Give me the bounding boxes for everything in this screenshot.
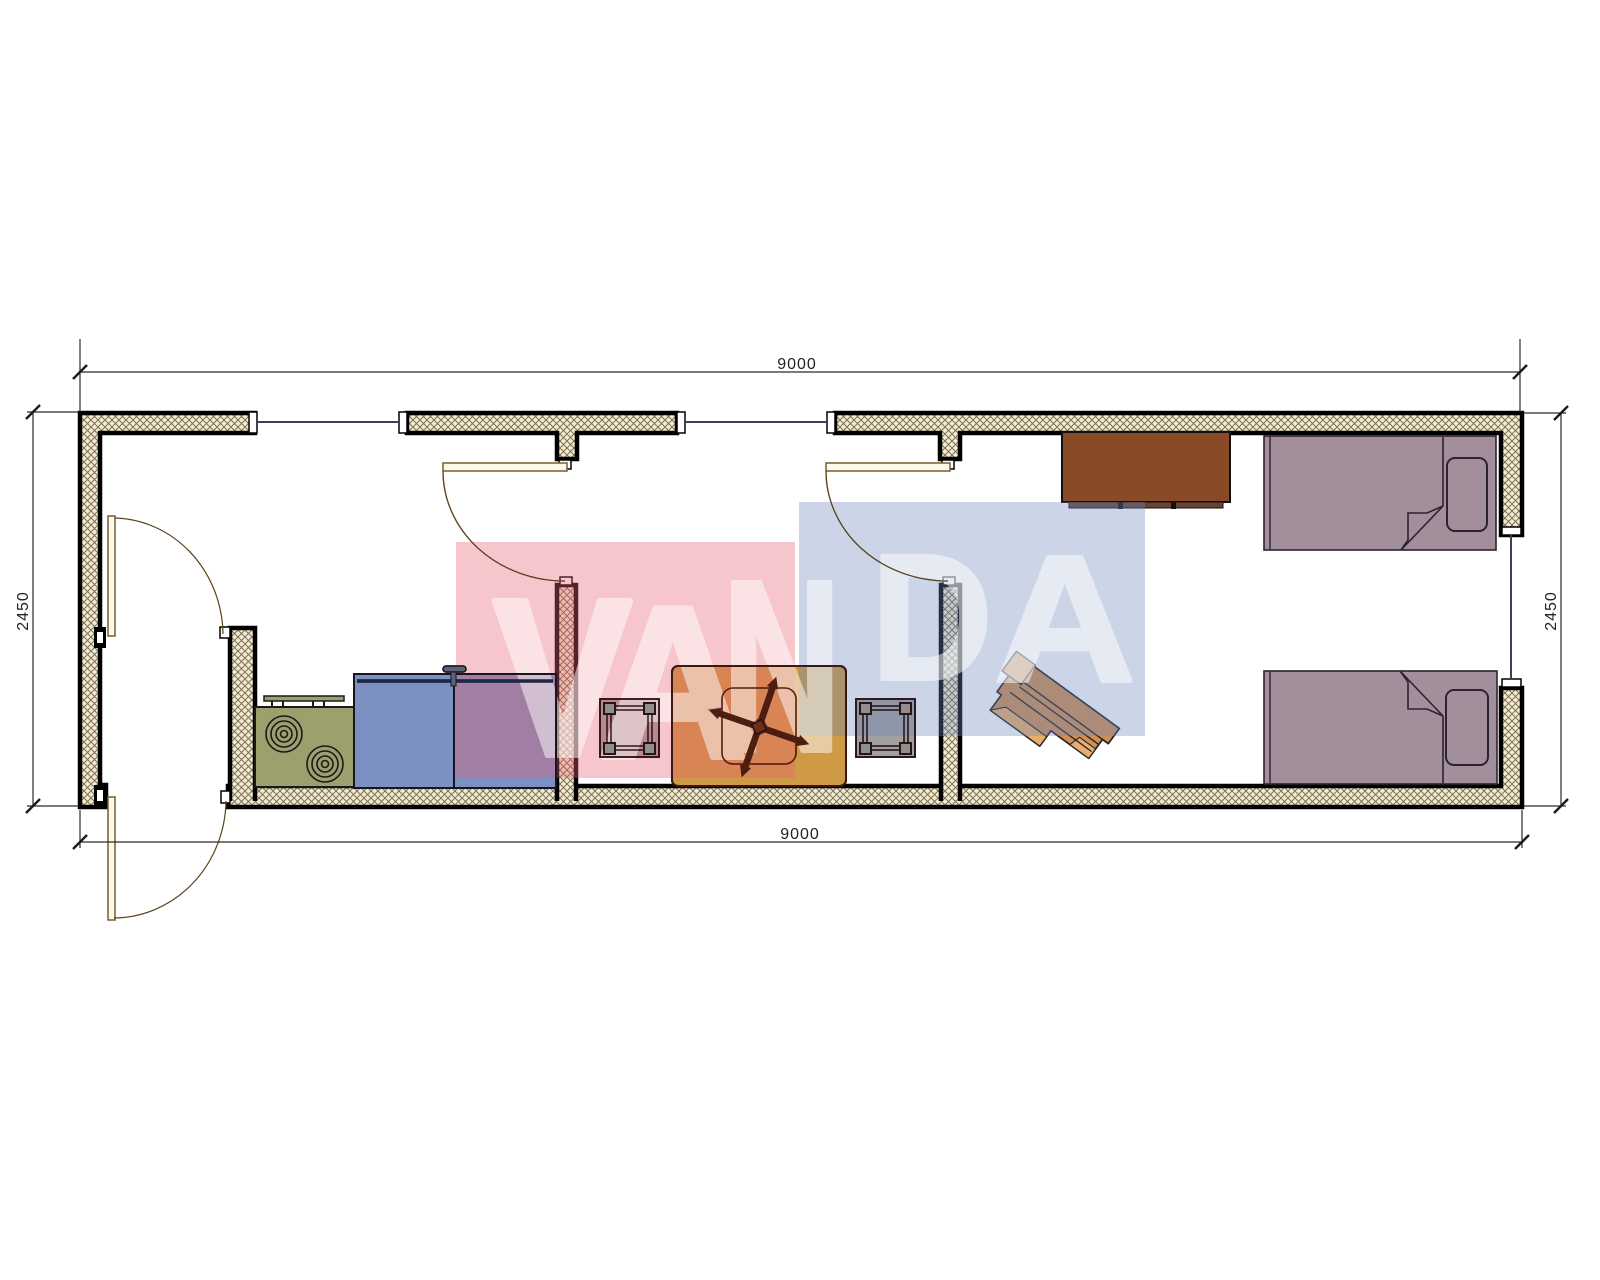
svg-text:9000: 9000 xyxy=(780,826,820,843)
svg-text:2450: 2450 xyxy=(1543,591,1560,631)
svg-text:D: D xyxy=(871,517,993,717)
svg-text:A: A xyxy=(994,518,1136,719)
svg-text:9000: 9000 xyxy=(777,356,817,373)
svg-text:2450: 2450 xyxy=(15,591,32,631)
